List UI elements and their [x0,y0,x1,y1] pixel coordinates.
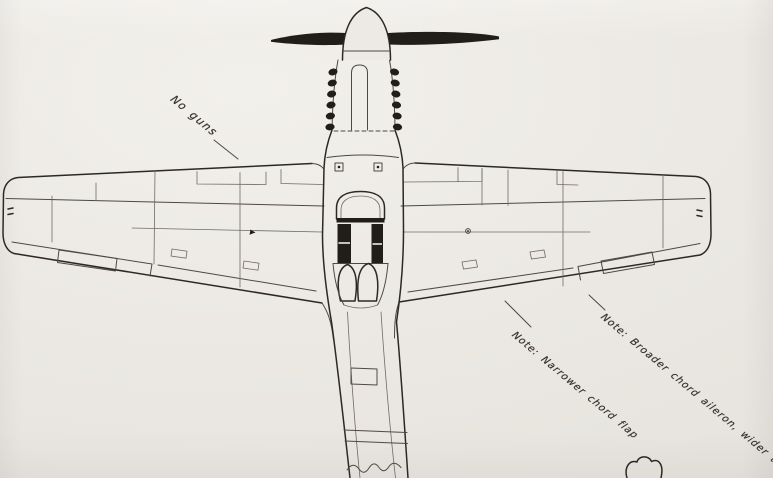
right-flap-hatch-1 [462,260,478,269]
propeller-blade-right [388,32,499,45]
left-flap-hatch-2 [243,261,259,270]
flap-note-leader-line [505,301,531,327]
radio-hatch [351,368,377,385]
right-wingtip-light [697,210,702,217]
left-rib-line-2 [154,171,155,264]
left-front-spar-line [6,199,324,207]
left-wing [3,164,334,341]
firewall-line [327,155,399,158]
fuselage-joint-line-1 [344,430,407,433]
left-flap-hatch-1 [171,249,187,258]
left-wingtip-light [8,208,13,215]
windscreen-inner-arch [341,196,380,219]
left-rear-spar-line [132,228,322,232]
left-aileron-hinge [12,242,152,276]
left-wing-root-le-fillet [312,164,324,170]
exhaust-stacks-right [389,68,402,131]
leader-lines [214,140,605,327]
aileron-note-leader-line [589,295,605,310]
spinner [343,8,391,61]
fuselage-left-side [323,130,351,478]
propeller-blade-left [271,33,346,45]
scanned-drawing-page: No guns Note: Narrower chord flap Note: … [0,0,773,478]
drawing-break-wavy-line [347,463,401,472]
aft-glazing-right [358,264,378,302]
windscreen-header-bar [337,218,385,223]
left-le-panel-boxes [197,170,324,185]
exhaust-stacks-left [325,68,338,131]
aft-glazing-left [338,265,356,302]
right-aileron-hinge [578,244,700,281]
spinner-outline [343,8,391,61]
fuselage-joint-line-2 [345,441,408,444]
gun-trough-panel [352,65,368,130]
right-front-spar-line [401,199,705,207]
aft-fairing-right-edge [378,264,389,306]
right-flap-hatch-2 [530,250,546,259]
right-wing [395,163,712,338]
deck-fitting-right-dot [377,166,380,169]
aft-fairing-bottom-arc [344,305,378,308]
left-trim-tab [58,250,118,271]
right-wing-outline [399,163,711,302]
deck-fitting-left-dot [338,166,341,169]
left-flap-hinge [158,265,316,291]
engine-cowling [325,60,402,131]
scallop-sketch-fragment [626,457,662,478]
cockpit-canopy [333,192,388,309]
right-wing-fuel-cap-dot [467,230,469,232]
no-guns-leader-line [214,140,238,159]
right-wing-root-le-fillet [403,163,415,169]
fuselage-stringer-right [381,312,396,478]
aircraft-plan-view-drawing [0,0,773,478]
left-wing-outline [3,164,322,304]
fuselage-stringer-left [348,312,361,478]
fuselage [323,130,409,478]
